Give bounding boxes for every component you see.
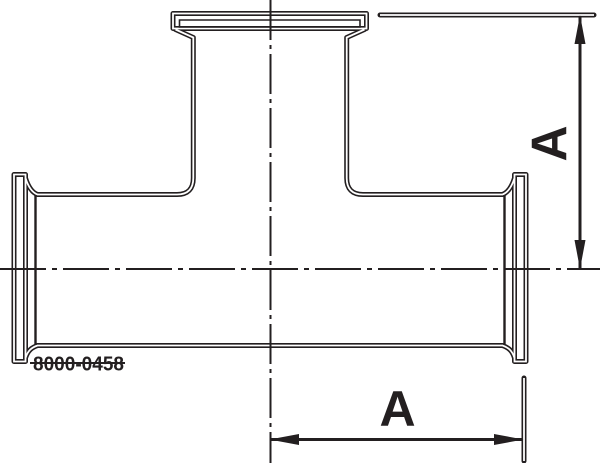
part-number-group: 8000-0458	[30, 354, 125, 376]
dimension-label-right: A	[522, 125, 578, 161]
drawing-background	[0, 0, 600, 463]
tee-drawing-svg: A A 8000-0458	[0, 0, 600, 463]
technical-drawing: A A 8000-0458	[0, 0, 600, 463]
part-number-label: 8000-0458	[33, 354, 124, 376]
dimension-label-bottom: A	[379, 381, 415, 437]
